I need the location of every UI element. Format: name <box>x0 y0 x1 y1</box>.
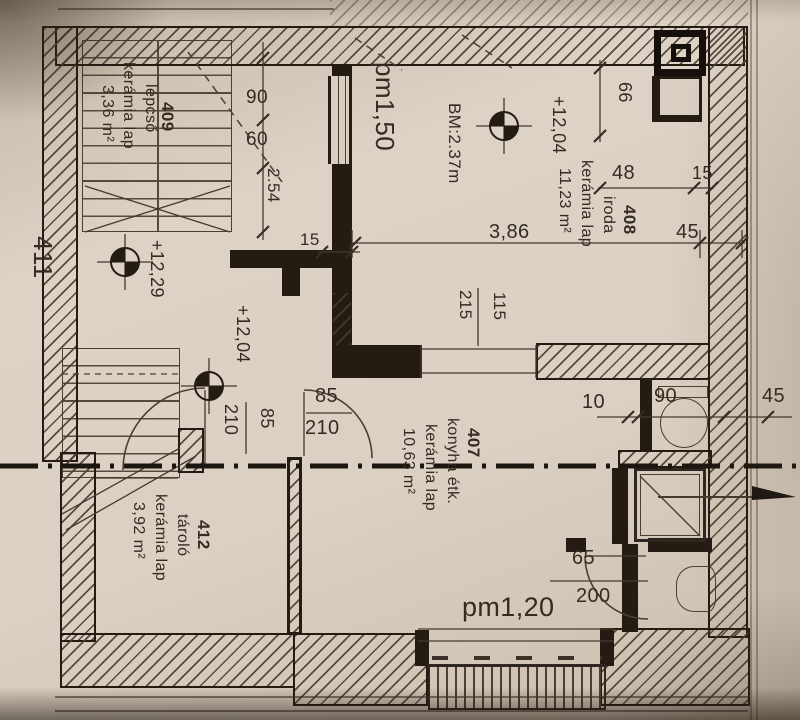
dim-wc-10: 10 <box>582 392 605 412</box>
dim-office-width: 3,86 <box>489 222 530 242</box>
room-storage-area: 3,92 m² <box>130 502 146 559</box>
dim-storage-door-width: 85 <box>258 408 276 429</box>
dim-stair-60: 60 <box>246 130 268 149</box>
dim-bath-door-width: 65 <box>572 548 595 568</box>
dim-top-15: 15 <box>692 164 713 182</box>
dim-stair-254: 2.54 <box>265 168 282 203</box>
room-storage-number: 412 <box>195 520 212 550</box>
level-landing: +12,29 <box>148 240 166 298</box>
level-marker-office <box>489 111 519 141</box>
height-parapet-upper: pm1,50 <box>372 62 398 151</box>
dim-chimney-66: 66 <box>616 82 634 103</box>
room-kitchen-name: konyha étk. <box>444 418 460 504</box>
room-kitchen-area: 10,63 m² <box>400 428 416 494</box>
room-stairwell-name: lépcső <box>142 84 158 133</box>
room-office-finish: kerámia lap <box>578 160 594 247</box>
dim-office-wall-45: 45 <box>676 222 699 242</box>
room-storage-finish: kerámia lap <box>152 494 168 581</box>
dim-top-48: 48 <box>612 163 635 183</box>
room-office-number: 408 <box>621 205 638 235</box>
room-stairwell-finish: kerámia lap <box>120 62 136 149</box>
room-stairwell-area: 3,36 m² <box>99 85 115 142</box>
height-office-clear: BM:2.37m <box>446 103 463 184</box>
dim-stair-90: 90 <box>246 88 268 107</box>
dim-wc-45: 45 <box>762 386 785 406</box>
dim-opening-width: 115 <box>491 292 508 320</box>
room-stairwell-number: 409 <box>159 102 176 132</box>
level-office: +12,04 <box>550 96 568 154</box>
level-hall: +12,04 <box>234 305 252 363</box>
dim-wc-90: 90 <box>654 386 677 406</box>
dim-opening-height: 215 <box>457 290 474 320</box>
room-kitchen-number: 407 <box>465 428 482 458</box>
room-adjacent-number: 411 <box>30 236 56 279</box>
dim-hall-door-height: 210 <box>305 418 340 438</box>
dim-wall-15: 15 <box>300 231 320 248</box>
height-parapet-lower: pm1,20 <box>462 594 554 621</box>
room-storage-name: tároló <box>174 514 190 556</box>
dim-hall-door-width: 85 <box>315 386 338 406</box>
room-office-name: iroda <box>600 196 616 234</box>
dim-bath-door-height: 200 <box>576 586 611 606</box>
dim-storage-door-height: 210 <box>222 404 240 435</box>
room-office-area: 11,23 m² <box>556 168 572 233</box>
room-kitchen-finish: kerámia lap <box>422 424 438 511</box>
section-arrow <box>752 486 796 500</box>
floor-plan: 409 lépcső kerámia lap 3,36 m² 408 iroda… <box>0 0 800 720</box>
level-marker-hall <box>194 371 224 401</box>
level-marker-landing <box>110 247 140 277</box>
